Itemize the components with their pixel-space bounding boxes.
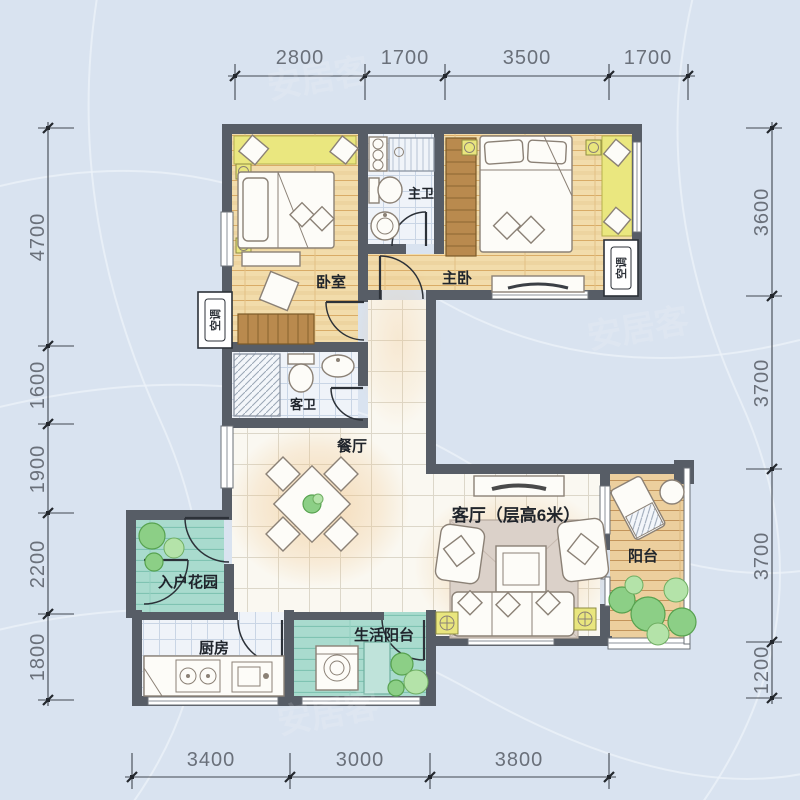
vanity-icon <box>369 137 387 171</box>
dim-left-4: 1800 <box>27 633 49 682</box>
dining-set <box>266 457 358 551</box>
dresser-icon <box>492 276 584 292</box>
bedroom-label: 卧室 <box>316 273 346 291</box>
floor-lamp-icon <box>574 608 596 630</box>
curtain-target-icon <box>586 140 601 155</box>
master-bath-label: 主卫 <box>408 186 434 201</box>
table-plant-icon <box>313 494 323 504</box>
shower-icon <box>234 354 280 416</box>
kitchen-fixtures <box>144 656 284 696</box>
window-dining-left <box>221 426 233 488</box>
ac-unit-left: 空调 <box>198 292 232 348</box>
master-bedroom-label: 主卧 <box>442 269 472 287</box>
armchair-icon <box>434 523 485 585</box>
wardrobe-icon <box>446 138 476 256</box>
bathtub-icon <box>389 138 434 171</box>
living-label: 客厅（层高6米） <box>451 505 580 525</box>
dining-label: 餐厅 <box>337 437 367 455</box>
floor-plan-svg: 空调 空调 <box>0 0 800 800</box>
ac-unit-right: 空调 <box>604 240 638 296</box>
single-bed-icon <box>238 172 334 248</box>
toilet-icon <box>369 177 402 203</box>
guest-bath-label: 客卫 <box>290 397 316 412</box>
tv-cabinet-icon <box>474 476 564 496</box>
double-bed-icon <box>480 136 572 252</box>
wardrobe-icon <box>238 314 314 344</box>
dim-left-1: 1600 <box>27 361 49 410</box>
window-bedroom-left <box>221 212 233 266</box>
dim-right-0: 3600 <box>751 188 773 237</box>
dim-top-1: 1700 <box>381 47 430 69</box>
window-master-right <box>633 142 641 232</box>
dim-bottom-1: 3000 <box>336 749 385 771</box>
dim-bottom-0: 3400 <box>187 749 236 771</box>
sofa-icon <box>452 591 574 636</box>
armchair-icon <box>557 517 610 582</box>
toilet-icon <box>288 354 314 392</box>
window-kitchen-bottom <box>148 697 278 705</box>
utility-board <box>364 642 390 694</box>
dim-right-1: 3700 <box>751 359 773 408</box>
washing-machine-icon <box>316 646 358 690</box>
floor-lamp-icon <box>436 612 458 634</box>
dim-top-3: 1700 <box>624 47 673 69</box>
basin-icon <box>322 355 354 377</box>
utility-balcony-label: 生活阳台 <box>354 626 414 644</box>
dim-top-2: 3500 <box>503 47 552 69</box>
dim-bottom-2: 3800 <box>495 749 544 771</box>
dim-right-2: 3700 <box>751 532 773 581</box>
curtain-target-icon <box>462 140 477 155</box>
floor-plan-image: 空调 空调 <box>0 0 800 800</box>
dim-left-0: 4700 <box>27 213 49 262</box>
dim-right-3: 1200 <box>751 646 773 695</box>
balcony-label: 阳台 <box>628 547 658 565</box>
ac-left-label: 空调 <box>208 309 222 331</box>
dim-left-2: 1900 <box>27 445 49 494</box>
bedside-rug <box>242 252 300 266</box>
kitchen-label: 厨房 <box>199 639 229 657</box>
entry-garden-label: 入户花园 <box>158 573 218 591</box>
ac-right-label: 空调 <box>614 257 628 279</box>
round-table-icon <box>660 480 684 504</box>
dim-left-3: 2200 <box>27 540 49 589</box>
coffee-table-icon <box>496 546 546 592</box>
basin-icon <box>371 212 399 240</box>
